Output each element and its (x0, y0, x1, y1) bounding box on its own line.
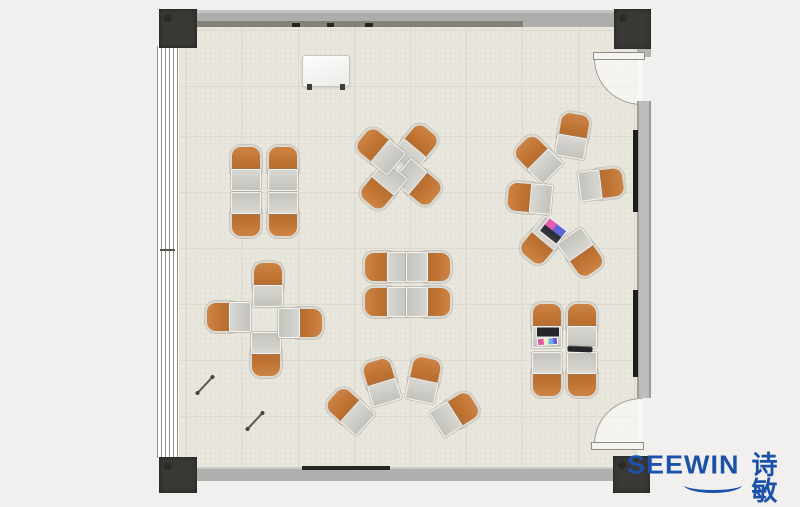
wall-mark (327, 23, 334, 27)
logo-swoosh-icon (684, 477, 742, 493)
desk-top-view (278, 308, 300, 338)
desk-chair-unit (577, 164, 627, 203)
wall-bottom (190, 467, 616, 481)
wall-whiteboard-right-upper (633, 130, 638, 212)
desk-chair-unit (505, 179, 554, 217)
desk-top-view (567, 326, 597, 348)
wall-right (637, 101, 651, 398)
desk-chair-unit (530, 352, 564, 398)
brand-logo: SEEWIN 诗敏 (627, 452, 800, 504)
wall-top-rail (190, 21, 523, 27)
stick-object (247, 412, 263, 429)
desk-chair-unit (205, 300, 251, 334)
furniture-layer (0, 0, 800, 507)
desk-top-view (567, 352, 597, 374)
wall-whiteboard-right-lower (633, 290, 638, 377)
desk-top-view (231, 169, 261, 191)
wall-mark (292, 23, 300, 27)
corner-post-top-right (614, 9, 651, 49)
mobile-whiteboard (302, 55, 350, 87)
desk-chair-unit (229, 145, 263, 191)
desk-chair-unit (403, 353, 446, 405)
door-leaf-bottom-right (591, 442, 644, 450)
laptop-with-notebook (536, 327, 560, 346)
desk-top-view (229, 302, 251, 332)
wall-mark (365, 23, 373, 27)
desk-top-view (405, 377, 439, 405)
desk-chair-unit (266, 145, 300, 191)
desk-top-view (268, 192, 298, 214)
desk-top-view (251, 332, 281, 354)
desk-top-view (253, 285, 283, 307)
desk-chair-unit (358, 354, 404, 408)
window-wall-left (157, 46, 179, 458)
desk-chair-unit (565, 352, 599, 398)
corner-post-top-left (159, 9, 197, 48)
desk-chair-unit (406, 285, 452, 319)
desk-top-view (406, 252, 428, 282)
desk-chair-unit (229, 192, 263, 238)
desk-chair-unit (363, 250, 409, 284)
wall-mark-bottom (302, 466, 390, 470)
desk-chair-unit (363, 285, 409, 319)
desk-chair-unit (565, 302, 599, 348)
stick-object (197, 376, 213, 393)
corner-post-bottom-left (159, 457, 197, 493)
desk-top-view (268, 169, 298, 191)
closed-tablet (567, 346, 592, 353)
window-mullion-joint (160, 249, 175, 251)
desk-top-view (406, 287, 428, 317)
desk-chair-unit (251, 261, 285, 307)
desk-chair-unit (406, 250, 452, 284)
desk-chair-unit (350, 122, 407, 178)
desk-top-view (231, 192, 261, 214)
desk-top-view (577, 169, 602, 201)
brand-wordmark: SEEWIN (627, 453, 740, 479)
brand-cjk-text: 诗敏 (752, 452, 800, 504)
desk-chair-unit (266, 192, 300, 238)
floor-plan-stage: SEEWIN 诗敏 (0, 0, 800, 507)
desk-chair-unit (278, 306, 324, 340)
desk-top-view (529, 183, 554, 215)
desk-top-view (532, 352, 562, 374)
desk-chair-unit (552, 109, 593, 160)
door-leaf-top-right (593, 52, 645, 60)
